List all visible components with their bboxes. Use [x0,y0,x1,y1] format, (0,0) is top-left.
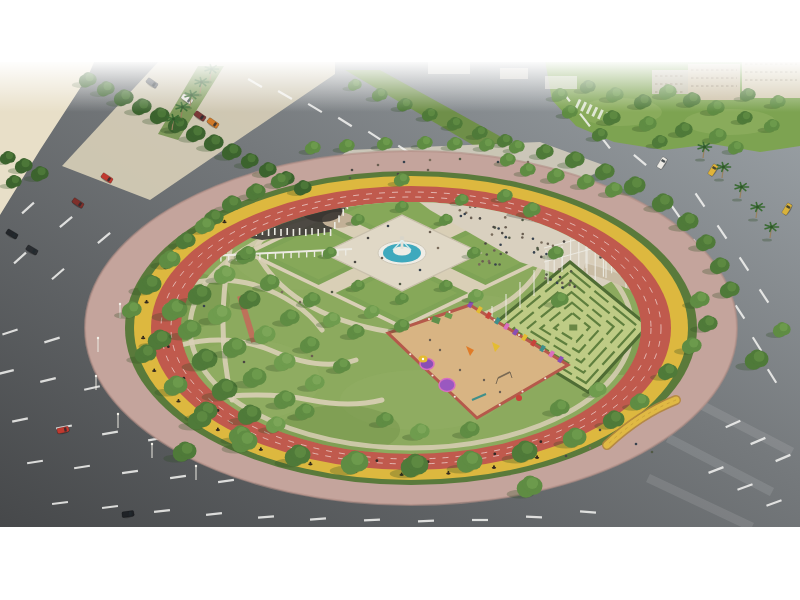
rendered-scene [0,0,800,600]
runner [539,440,542,443]
photo [0,44,800,527]
aerial-park-rendering [0,0,800,600]
runner [493,453,496,456]
runner [376,459,379,462]
